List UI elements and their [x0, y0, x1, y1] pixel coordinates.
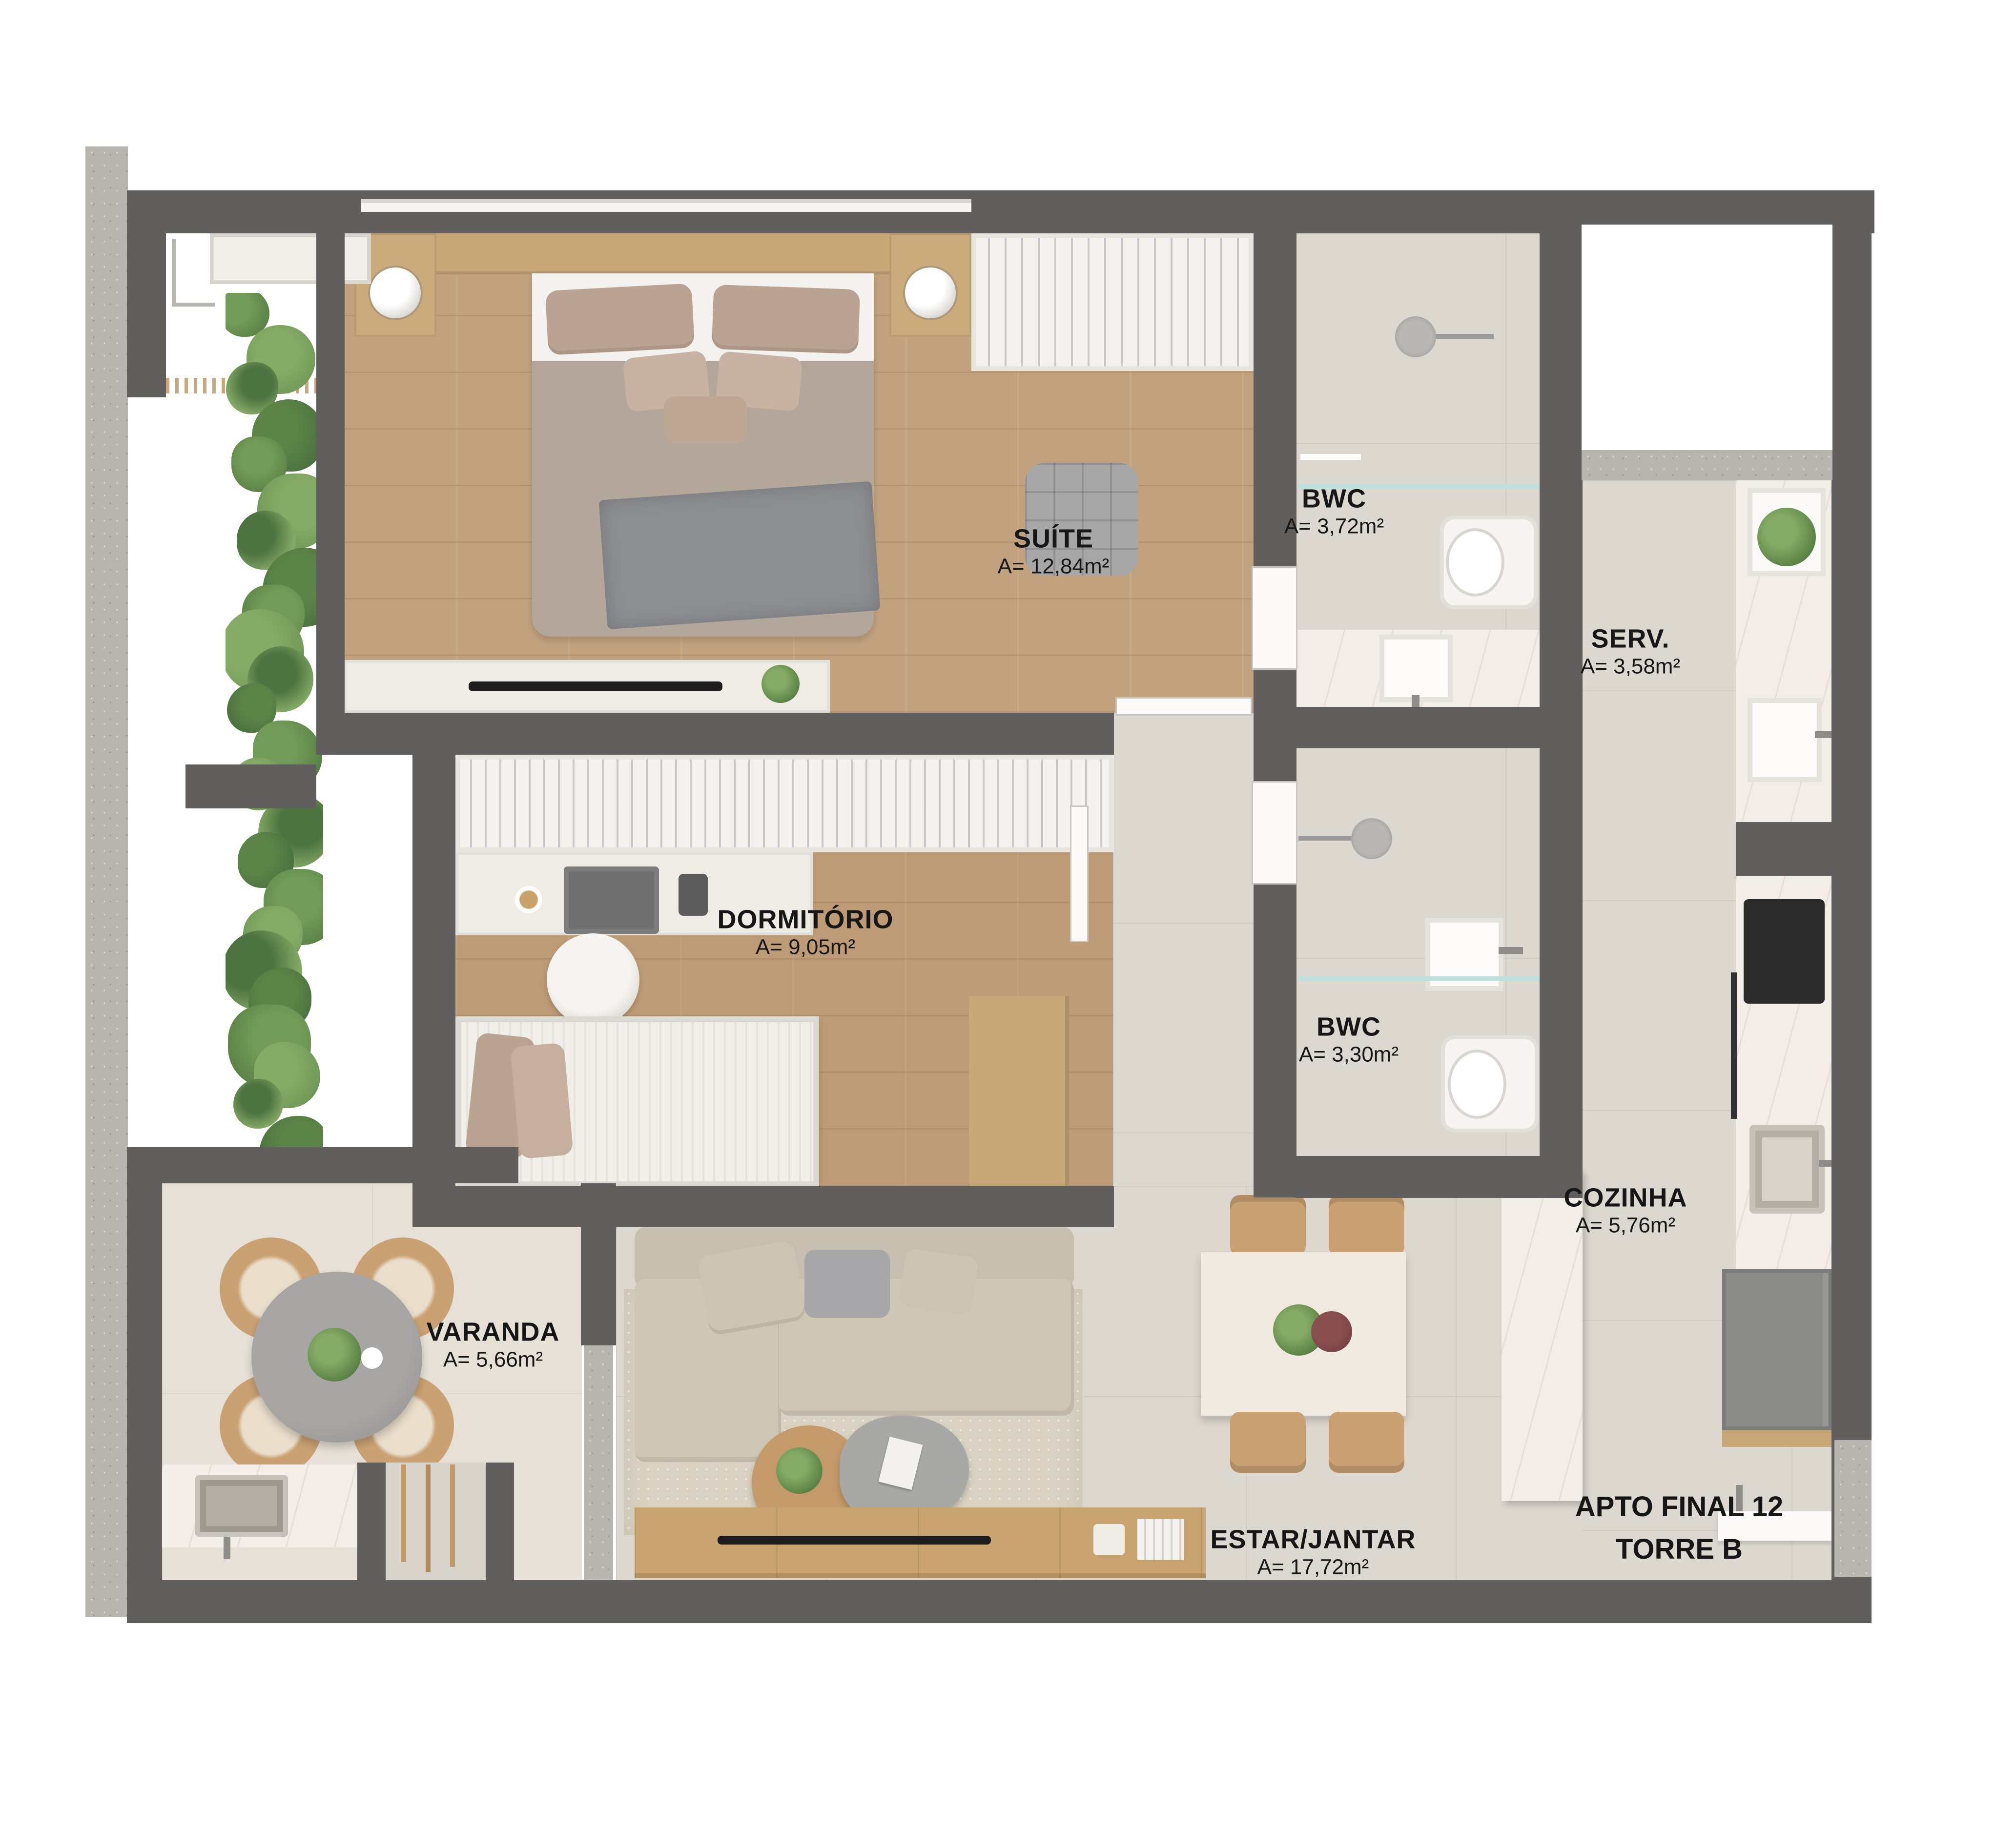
varanda-sink-faucet	[224, 1537, 230, 1559]
varanda-sink	[195, 1475, 288, 1537]
floor-plan: SUÍTE A= 12,84m² BWC A= 3,72m² SERV. A= …	[0, 0, 2016, 1835]
dorm-coffee-cup	[515, 886, 542, 913]
kitchen-cooktop	[1744, 899, 1825, 1004]
serv-area: A= 3,58m²	[1581, 654, 1680, 680]
dorm-stool	[547, 933, 639, 1026]
dormitorio-area: A= 9,05m²	[718, 935, 894, 961]
estar-jantar-name: ESTAR/JANTAR	[1210, 1525, 1416, 1555]
serv-sink	[1748, 698, 1822, 782]
suite-throw-blanket	[598, 481, 880, 629]
dorm-tall-cabinet	[969, 996, 1069, 1186]
suite-name: SUÍTE	[998, 524, 1110, 554]
wall-dorm-left	[412, 755, 455, 1186]
broom-2	[426, 1464, 431, 1572]
dining-chair-1	[1230, 1195, 1306, 1256]
closet-divider-left	[357, 1463, 386, 1581]
label-serv: SERV. A= 3,58m²	[1581, 624, 1680, 680]
fridge-base-wood	[1722, 1430, 1832, 1447]
unit-line1: APTO FINAL 12	[1575, 1485, 1784, 1528]
wall-dorm-bottom	[412, 1186, 1114, 1227]
wall-bwc-divider	[1296, 707, 1541, 748]
kitchen-fridge	[1722, 1269, 1832, 1430]
bwc2-glass-divider	[1298, 976, 1540, 981]
serv-name: SERV.	[1581, 624, 1680, 654]
dorm-laptop	[564, 866, 659, 934]
bwc-suite-door	[1252, 566, 1297, 670]
label-unit: APTO FINAL 12 TORRE B	[1575, 1485, 1784, 1570]
wall-left-top	[127, 190, 166, 397]
bwc-social-door	[1252, 781, 1297, 885]
bwc-social-area: A= 3,30m²	[1299, 1042, 1399, 1068]
shaft-void	[1582, 225, 1832, 450]
wall-left-bottom	[127, 1147, 162, 1623]
dormitorio-door	[1070, 805, 1089, 942]
label-cozinha: COZINHA A= 5,76m²	[1564, 1183, 1687, 1239]
suite-area: A= 12,84m²	[998, 554, 1110, 580]
console-device	[1093, 1524, 1125, 1555]
closet-divider-right	[486, 1463, 514, 1581]
tv-soundbar	[718, 1536, 991, 1545]
varanda-area: A= 5,66m²	[427, 1347, 560, 1373]
suite-lamp-left	[370, 268, 421, 318]
cozinha-name: COZINHA	[1564, 1183, 1687, 1213]
dormitorio-name: DORMITÓRIO	[718, 905, 894, 935]
varanda-name: VARANDA	[427, 1317, 560, 1347]
dorm-mouse	[679, 874, 708, 916]
suite-wardrobe	[971, 233, 1254, 371]
ac-condenser-unit	[210, 233, 371, 284]
varanda-table-cup	[361, 1347, 383, 1369]
broom-3	[450, 1464, 455, 1567]
varanda-table-plant	[308, 1328, 361, 1381]
wall-bwc-left-column	[1254, 233, 1296, 1197]
bwc2-toilet-seat	[1448, 1050, 1506, 1119]
varanda-sliding-glass	[584, 1345, 613, 1580]
cozinha-area: A= 5,76m²	[1564, 1213, 1687, 1239]
suite-pillow-right	[712, 285, 860, 354]
console-books	[1137, 1519, 1184, 1560]
bwc1-shower-head	[1395, 316, 1436, 357]
label-suite: SUÍTE A= 12,84m²	[998, 524, 1110, 580]
bwc2-shower-head	[1351, 818, 1392, 859]
wall-bottom	[127, 1580, 1872, 1623]
entry-door-threshold	[1834, 1440, 1872, 1577]
ac-pipes	[172, 239, 215, 307]
suite-sliding-door	[1115, 697, 1252, 716]
label-bwc-suite: BWC A= 3,72m²	[1284, 484, 1384, 540]
garden-foliage	[233, 1079, 283, 1129]
wall-garden-stub	[185, 764, 316, 808]
suite-counter-plant	[761, 665, 800, 703]
bwc1-toilet-seat	[1446, 528, 1504, 597]
hall-floor	[1113, 713, 1255, 1198]
kitchen-sink	[1749, 1125, 1825, 1214]
broom-1	[401, 1464, 406, 1562]
unit-line2: TORRE B	[1575, 1528, 1784, 1570]
bwc1-shelf	[1300, 454, 1361, 460]
label-bwc-social: BWC A= 3,30m²	[1299, 1012, 1399, 1068]
estar-jantar-area: A= 17,72m²	[1210, 1555, 1416, 1581]
wall-garden-varanda	[127, 1147, 518, 1183]
vertical-garden	[226, 293, 323, 1150]
bwc-suite-name: BWC	[1284, 484, 1384, 514]
shaft-sill	[1582, 450, 1832, 480]
dorm-wardrobe	[455, 755, 1114, 852]
suite-headboard	[356, 233, 971, 274]
bwc-social-name: BWC	[1299, 1012, 1399, 1042]
bwc-suite-area: A= 3,72m²	[1284, 514, 1384, 540]
sofa-pillow-1	[697, 1240, 807, 1336]
bwc1-sink	[1379, 635, 1453, 702]
serv-plant	[1757, 508, 1816, 566]
dining-chair-2	[1329, 1195, 1404, 1256]
exterior-concrete-strip	[85, 146, 128, 1617]
label-varanda: VARANDA A= 5,66m²	[427, 1317, 560, 1373]
label-estar-jantar: ESTAR/JANTAR A= 17,72m²	[1210, 1525, 1416, 1581]
broom-closet	[386, 1463, 486, 1581]
oven-handle	[1731, 972, 1737, 1119]
suite-pillow-left	[545, 283, 695, 355]
coffee-table-plant	[776, 1447, 823, 1494]
bwc2-faucet	[1499, 947, 1523, 954]
sofa-pillow-2	[804, 1250, 890, 1318]
label-dormitorio: DORMITÓRIO A= 9,05m²	[718, 905, 894, 961]
wall-right	[1831, 190, 1872, 1623]
suite-window	[361, 199, 971, 212]
wall-serv-cozinha	[1736, 822, 1831, 876]
suite-tv	[469, 681, 722, 691]
dining-plant-red	[1311, 1311, 1352, 1352]
dorm-bed-pillow-2	[510, 1043, 574, 1159]
dining-chair-3	[1230, 1412, 1306, 1473]
suite-cushion-center	[664, 396, 747, 443]
wall-varanda-right	[581, 1183, 616, 1345]
dining-chair-4	[1329, 1412, 1404, 1473]
wall-bwc2-bottom	[1296, 1156, 1583, 1198]
suite-lamp-right	[905, 268, 956, 318]
wall-bwc-right-column	[1540, 233, 1583, 1157]
wall-under-suite	[316, 713, 1114, 755]
wall-suite-left	[316, 233, 345, 713]
sofa-pillow-3	[898, 1248, 979, 1316]
